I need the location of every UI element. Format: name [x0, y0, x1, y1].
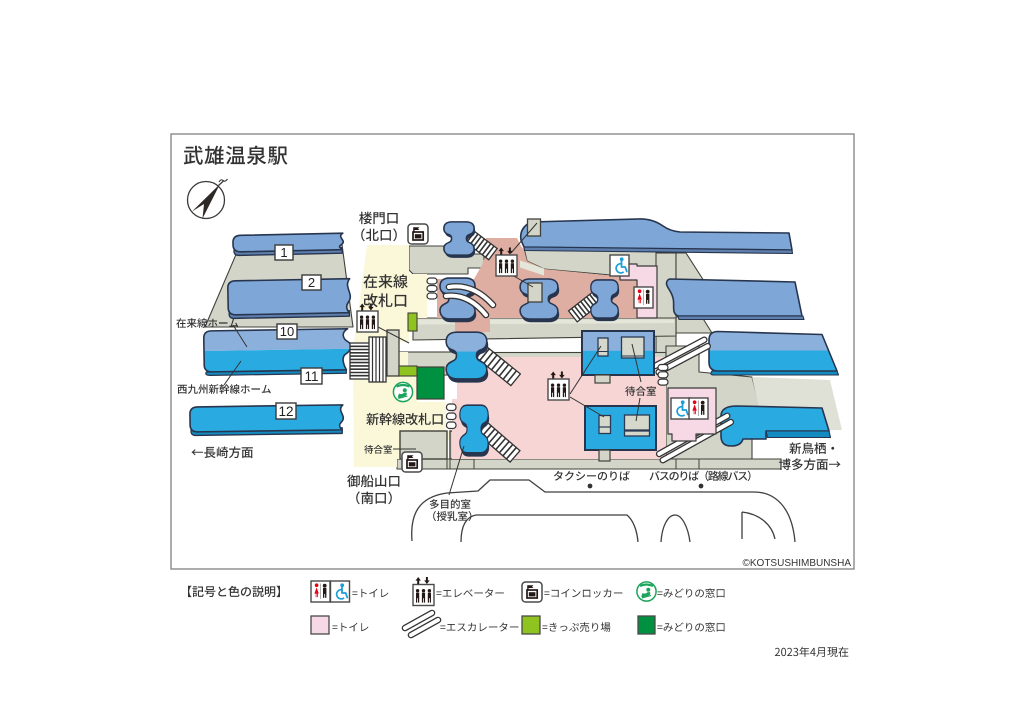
svg-text:12: 12	[278, 404, 293, 419]
svg-text:10: 10	[280, 324, 294, 339]
svg-text:2: 2	[308, 275, 315, 290]
svg-text:©KOTSUSHIMBUNSHA: ©KOTSUSHIMBUNSHA	[743, 558, 852, 569]
svg-text:1: 1	[280, 245, 287, 260]
svg-text:11: 11	[304, 369, 318, 384]
